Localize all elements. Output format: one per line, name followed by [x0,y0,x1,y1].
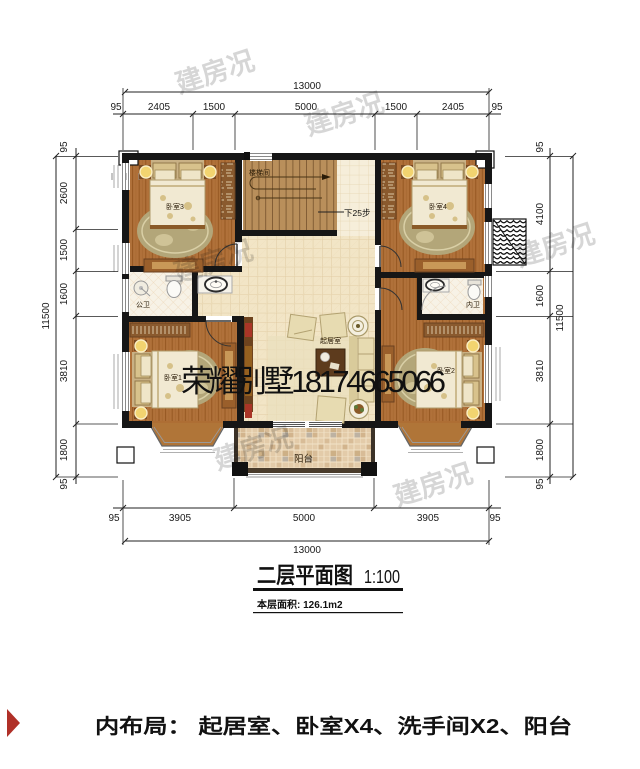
svg-text:荣耀别墅18174665066: 荣耀别墅18174665066 [181,364,446,399]
svg-text:3905: 3905 [169,513,192,524]
svg-text:本层面积: 126.1m2: 本层面积: 126.1m2 [257,598,343,611]
svg-text:1500: 1500 [59,238,70,261]
svg-text:2405: 2405 [442,102,465,113]
svg-text:95: 95 [59,478,70,490]
svg-text:内布局： 起居室、卧室X4、洗手间X2、阳台: 内布局： 起居室、卧室X4、洗手间X2、阳台 [95,714,572,738]
svg-text:内卫: 内卫 [466,300,480,309]
svg-text:95: 95 [535,478,546,490]
svg-text:1600: 1600 [59,282,70,305]
svg-text:5000: 5000 [293,513,316,524]
svg-text:阳台: 阳台 [294,453,313,465]
svg-text:1800: 1800 [59,438,70,461]
svg-text:95: 95 [489,513,501,524]
svg-text:13000: 13000 [293,81,321,92]
svg-text:1:100: 1:100 [364,567,400,587]
svg-text:11500: 11500 [555,304,566,332]
svg-text:2405: 2405 [148,102,171,113]
svg-text:卧室1: 卧室1 [164,373,182,382]
svg-text:3810: 3810 [535,359,546,382]
svg-text:95: 95 [108,513,120,524]
svg-text:1600: 1600 [535,284,546,307]
svg-text:13000: 13000 [293,545,321,556]
svg-text:95: 95 [59,141,70,153]
svg-text:卧室4: 卧室4 [429,202,447,211]
svg-text:公卫: 公卫 [136,301,150,309]
svg-text:下25步: 下25步 [344,208,370,218]
svg-text:1500: 1500 [385,102,408,113]
svg-text:4100: 4100 [535,202,546,225]
svg-text:1500: 1500 [203,102,226,113]
svg-text:起居室: 起居室 [320,336,341,345]
svg-text:1800: 1800 [535,438,546,461]
svg-text:2600: 2600 [59,181,70,204]
svg-text:95: 95 [535,141,546,153]
svg-text:95: 95 [491,102,503,113]
svg-text:3810: 3810 [59,359,70,382]
svg-text:95: 95 [110,102,122,113]
svg-text:3905: 3905 [417,513,440,524]
svg-text:卧室3: 卧室3 [166,202,184,211]
svg-text:楼梯间: 楼梯间 [249,168,270,177]
svg-text:11500: 11500 [41,302,52,330]
svg-text:二层平面图: 二层平面图 [257,563,353,588]
